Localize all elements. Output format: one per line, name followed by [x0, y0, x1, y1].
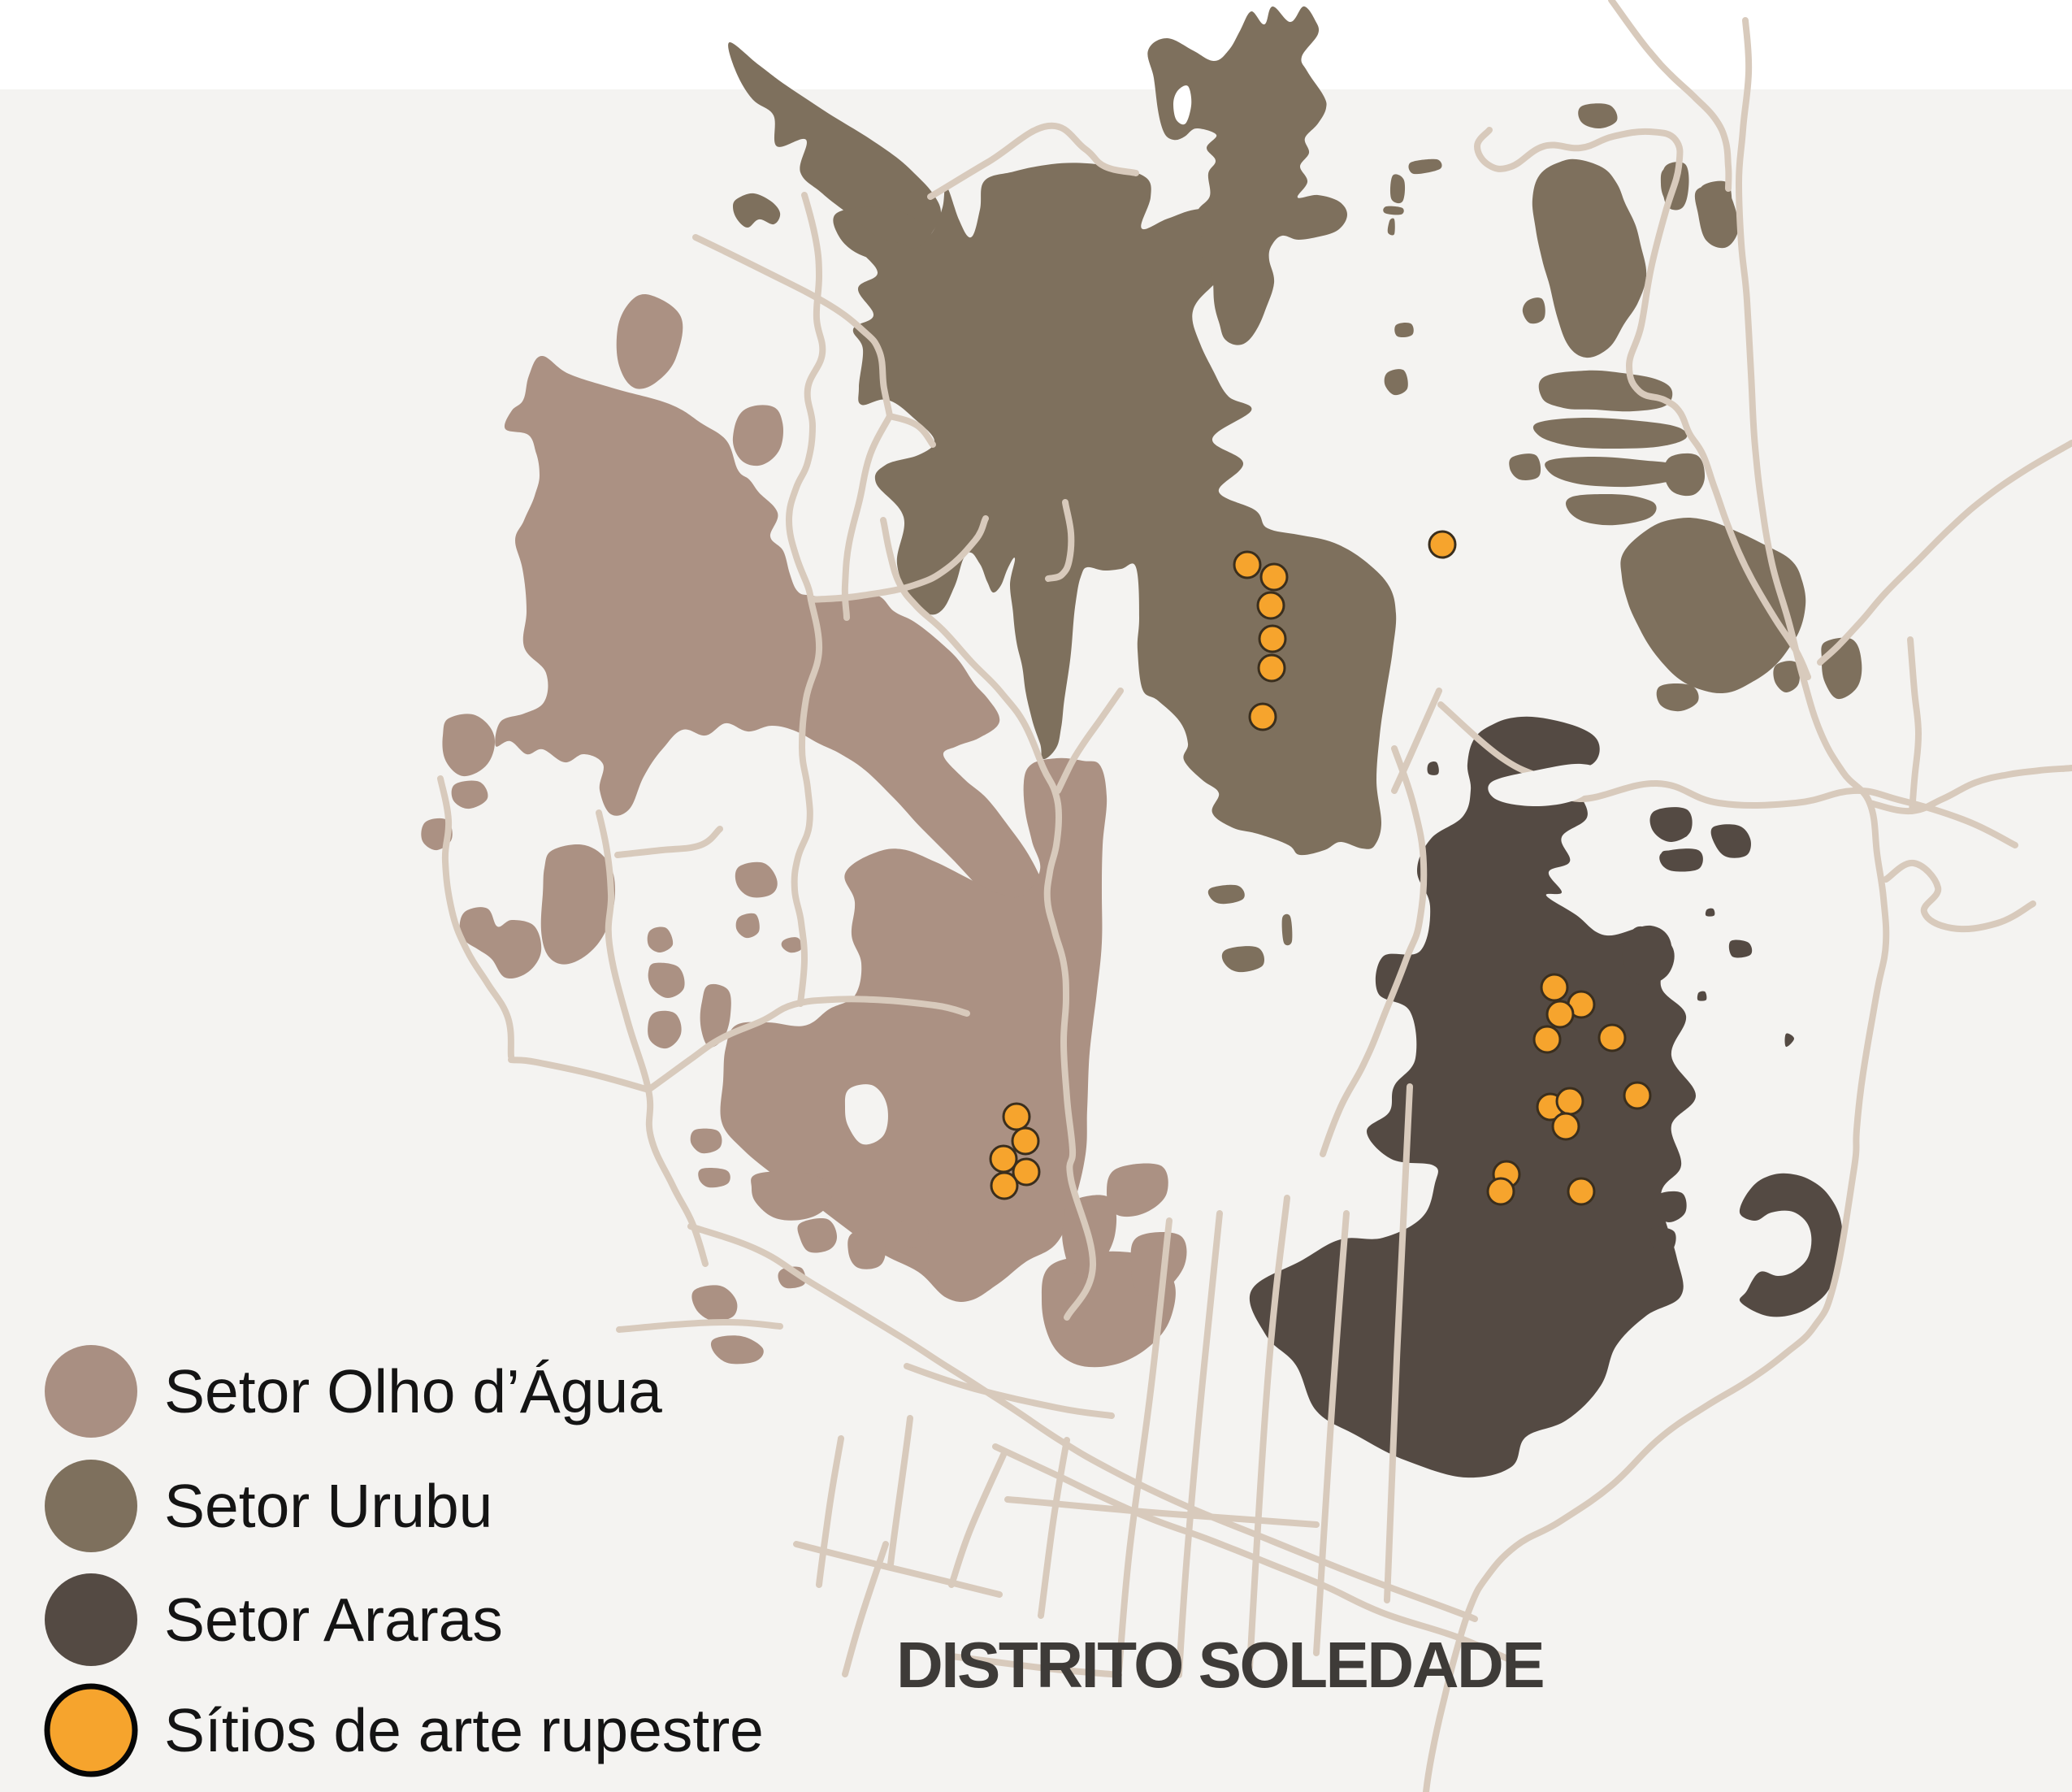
svg-text:DISTRITO SOLEDADE: DISTRITO SOLEDADE: [896, 1629, 1543, 1701]
svg-text:Setor Araras: Setor Araras: [164, 1586, 503, 1654]
svg-text:Sítios de arte rupestre: Sítios de arte rupestre: [164, 1696, 764, 1764]
svg-text:Setor Olho d’Água: Setor Olho d’Água: [164, 1357, 662, 1425]
svg-text:Setor Urubu: Setor Urubu: [164, 1472, 492, 1540]
